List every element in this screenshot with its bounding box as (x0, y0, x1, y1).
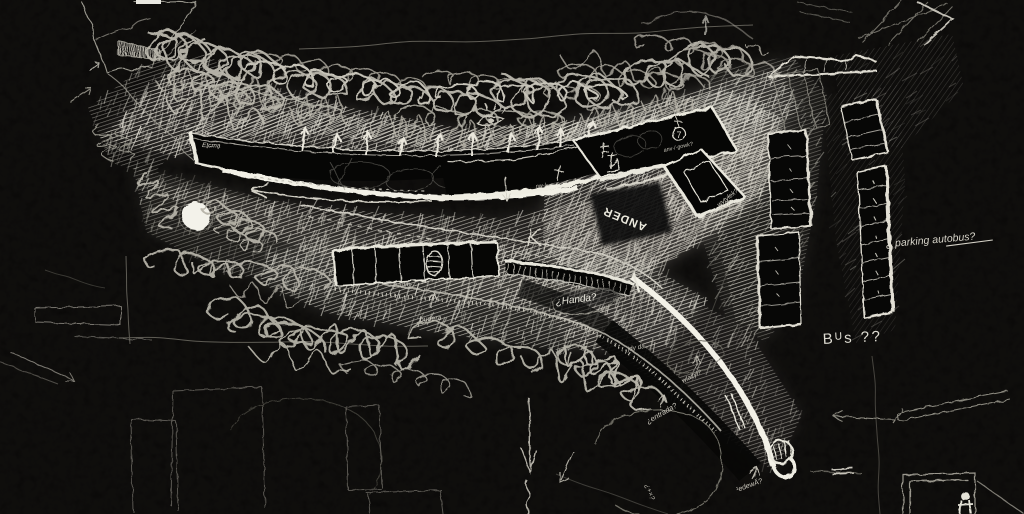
svg-text:7: 7 (677, 130, 682, 140)
svg-text:Bᵁs ??: Bᵁs ?? (822, 328, 883, 348)
svg-text:Eṯc̶ma̟: Eṯc̶ma̟ (202, 142, 221, 150)
svg-text:adm·…: adm·… (398, 281, 420, 289)
